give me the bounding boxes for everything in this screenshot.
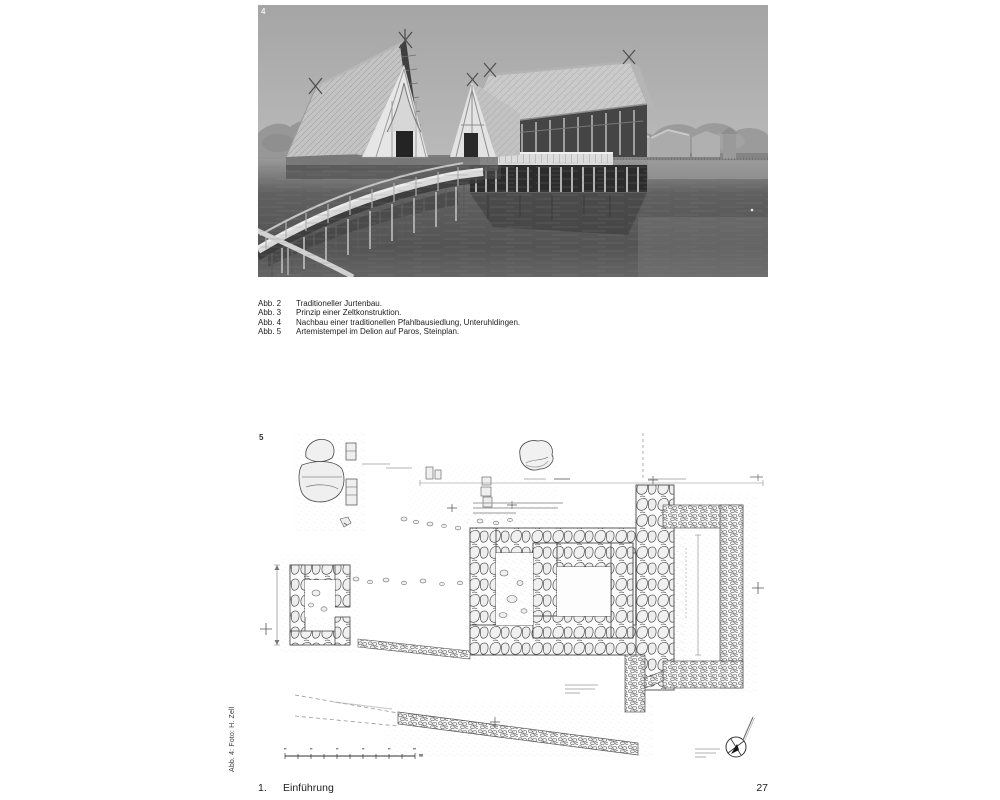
figure-captions: Abb. 2 Traditioneller Jurtenbau. Abb. 3 … <box>258 299 768 336</box>
caption-label: Abb. 5 <box>258 327 296 336</box>
caption-row-abb4: Abb. 4 Nachbau einer traditionellen Pfah… <box>258 318 768 327</box>
steinplan-drawing <box>258 433 768 768</box>
figure-photo-pfahlbau: 4 <box>258 5 768 277</box>
caption-text: Nachbau einer traditionellen Pfahlbausie… <box>296 318 768 327</box>
page-footer: 1. Einführung 27 <box>258 782 768 794</box>
caption-text: Artemistempel im Delion auf Paros, Stein… <box>296 327 768 336</box>
caption-label: Abb. 2 <box>258 299 296 308</box>
caption-row-abb5: Abb. 5 Artemistempel im Delion auf Paros… <box>258 327 768 336</box>
caption-label: Abb. 4 <box>258 318 296 327</box>
caption-text: Traditioneller Jurtenbau. <box>296 299 768 308</box>
photo-credit-vertical: Abb. 4: Foto: H. Zell <box>229 707 236 772</box>
caption-row-abb2: Abb. 2 Traditioneller Jurtenbau. <box>258 299 768 308</box>
figure-number-plan: 5 <box>259 434 263 442</box>
figure-plan-steinplan: 5 <box>258 433 768 768</box>
page-number: 27 <box>756 782 768 794</box>
caption-row-abb3: Abb. 3 Prinzip einer Zeltkonstruktion. <box>258 308 768 317</box>
chapter-title: Einführung <box>283 782 334 794</box>
figure-number-photo: 4 <box>261 8 265 16</box>
north-arrow-icon <box>726 717 755 757</box>
caption-label: Abb. 3 <box>258 308 296 317</box>
chapter-number: 1. <box>258 782 283 794</box>
caption-text: Prinzip einer Zeltkonstruktion. <box>296 308 768 317</box>
pfahlbau-photo-illustration <box>258 5 768 277</box>
